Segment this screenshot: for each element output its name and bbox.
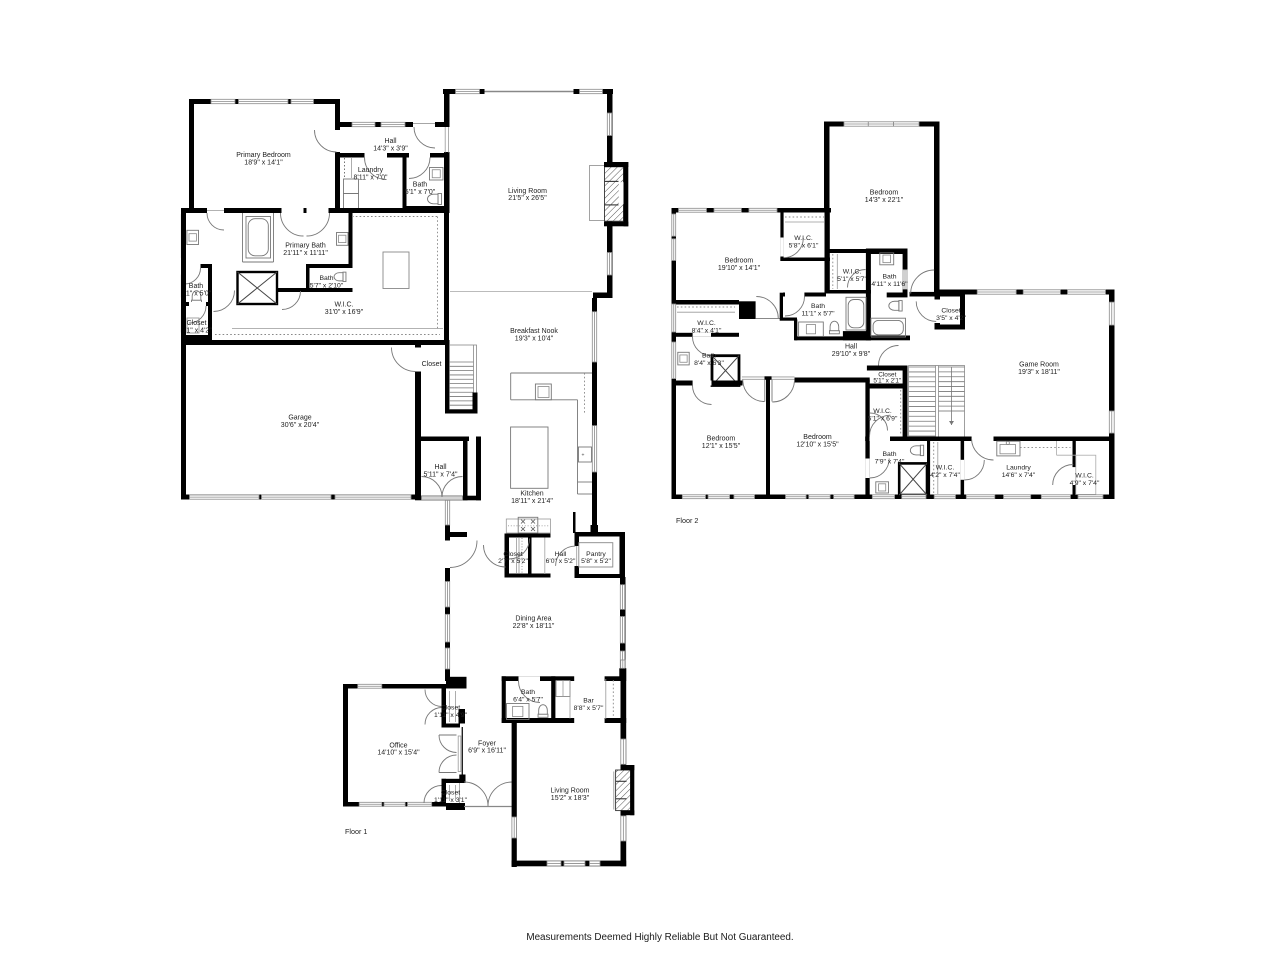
svg-text:19'3" x 18'11": 19'3" x 18'11" xyxy=(1018,369,1060,376)
svg-text:5'7" x 2'10": 5'7" x 2'10" xyxy=(310,282,344,289)
svg-text:Pantry: Pantry xyxy=(586,551,606,558)
svg-text:W.I.C.: W.I.C. xyxy=(873,408,892,415)
svg-text:4'11" x 11'6": 4'11" x 11'6" xyxy=(871,281,908,288)
svg-text:7'9" x 7'4": 7'9" x 7'4" xyxy=(875,458,905,465)
svg-text:Bedroom: Bedroom xyxy=(707,436,736,443)
svg-text:18'9" x 14'1": 18'9" x 14'1" xyxy=(244,159,283,166)
svg-text:4'9" x 7'4": 4'9" x 7'4" xyxy=(1070,480,1100,487)
svg-text:Living Room: Living Room xyxy=(508,188,547,195)
svg-text:3'5" x 4'2": 3'5" x 4'2" xyxy=(936,315,966,322)
svg-text:Bath: Bath xyxy=(702,353,716,360)
svg-text:Bedroom: Bedroom xyxy=(870,190,899,197)
svg-text:Bath: Bath xyxy=(320,275,334,282)
svg-text:Closet: Closet xyxy=(941,308,960,315)
svg-text:Bedroom: Bedroom xyxy=(803,434,832,441)
svg-text:Bath: Bath xyxy=(413,182,428,189)
svg-text:Floor 1: Floor 1 xyxy=(345,827,367,836)
svg-text:W.I.C.: W.I.C. xyxy=(334,302,353,309)
svg-text:Dining Area: Dining Area xyxy=(515,616,551,623)
svg-text:W.I.C.: W.I.C. xyxy=(1075,473,1094,480)
svg-text:Primary Bedroom: Primary Bedroom xyxy=(236,152,291,159)
svg-text:6'0" x 5'2": 6'0" x 5'2" xyxy=(546,558,576,565)
svg-text:W.I.C.: W.I.C. xyxy=(794,235,813,242)
svg-text:6'4" x 5'7": 6'4" x 5'7" xyxy=(513,696,543,703)
svg-text:12'1" x 15'5": 12'1" x 15'5" xyxy=(702,443,741,450)
svg-text:14'6" x 7'4": 14'6" x 7'4" xyxy=(1002,472,1036,479)
svg-text:Bedroom: Bedroom xyxy=(725,258,754,265)
svg-text:Bath: Bath xyxy=(883,451,897,458)
svg-text:Bath: Bath xyxy=(521,689,535,696)
svg-text:W.I.C.: W.I.C. xyxy=(843,269,862,276)
svg-text:Office: Office xyxy=(389,742,407,749)
svg-text:21'11" x 11'11": 21'11" x 11'11" xyxy=(283,250,328,257)
svg-text:5'8" x 5'2": 5'8" x 5'2" xyxy=(581,558,611,565)
svg-text:12'10" x 15'5": 12'10" x 15'5" xyxy=(796,441,839,448)
svg-text:Bar: Bar xyxy=(583,698,594,705)
svg-text:5'11" x 7'4": 5'11" x 7'4" xyxy=(424,471,458,478)
svg-text:Foyer: Foyer xyxy=(478,740,497,747)
svg-text:Hall: Hall xyxy=(384,138,397,145)
svg-text:Measurements Deemed Highly Rel: Measurements Deemed Highly Reliable But … xyxy=(526,932,793,943)
svg-text:19'10" x 14'1": 19'10" x 14'1" xyxy=(718,265,761,272)
svg-text:Laundry: Laundry xyxy=(358,167,384,174)
svg-text:8'4" x 4'1": 8'4" x 4'1" xyxy=(692,327,722,334)
svg-text:8'4" x 6'3": 8'4" x 6'3" xyxy=(694,360,724,367)
svg-text:4'2" x 7'4": 4'2" x 7'4" xyxy=(930,472,960,479)
svg-text:Closet: Closet xyxy=(441,790,460,797)
svg-text:6'9" x 16'11": 6'9" x 16'11" xyxy=(468,748,506,755)
svg-text:W.I.C.: W.I.C. xyxy=(936,465,955,472)
svg-text:21'5" x 26'5": 21'5" x 26'5" xyxy=(508,195,547,202)
svg-text:2'7" x 5'2": 2'7" x 5'2" xyxy=(498,558,528,565)
svg-text:5'8" x 6'1": 5'8" x 6'1" xyxy=(789,242,819,249)
svg-text:Bath: Bath xyxy=(811,303,825,310)
svg-text:18'11" x 21'4": 18'11" x 21'4" xyxy=(511,498,553,505)
svg-text:Closet: Closet xyxy=(441,705,460,712)
svg-text:5'1" x 2'1": 5'1" x 2'1" xyxy=(873,378,901,385)
svg-text:Hall: Hall xyxy=(434,464,447,471)
svg-text:8'11" x 7'0": 8'11" x 7'0" xyxy=(354,174,388,181)
svg-text:14'3" x 22'1": 14'3" x 22'1" xyxy=(865,197,904,204)
svg-text:W.I.C.: W.I.C. xyxy=(697,320,716,327)
svg-text:Hall: Hall xyxy=(555,551,567,558)
svg-text:29'10" x 9'8": 29'10" x 9'8" xyxy=(832,351,871,358)
svg-text:Primary Bath: Primary Bath xyxy=(285,243,326,250)
svg-text:22'8" x 18'11": 22'8" x 18'11" xyxy=(513,623,555,630)
svg-text:30'6" x 20'4": 30'6" x 20'4" xyxy=(281,422,320,429)
svg-text:5'1" x 5'7": 5'1" x 5'7" xyxy=(837,276,867,283)
svg-text:+: + xyxy=(582,453,585,459)
svg-text:Living Room: Living Room xyxy=(551,788,590,795)
svg-text:Laundry: Laundry xyxy=(1006,465,1031,472)
svg-text:Kitchen: Kitchen xyxy=(520,491,543,498)
svg-text:8'8" x 5'7": 8'8" x 5'7" xyxy=(574,705,604,712)
svg-text:Garage: Garage xyxy=(288,415,311,422)
svg-text:14'10" x 15'4": 14'10" x 15'4" xyxy=(377,750,420,757)
svg-text:Closet: Closet xyxy=(422,361,442,368)
svg-text:1'11" x 3'1": 1'11" x 3'1" xyxy=(434,797,468,804)
svg-text:Floor 2: Floor 2 xyxy=(676,516,698,525)
svg-text:Bath: Bath xyxy=(189,283,204,290)
svg-text:Game Room: Game Room xyxy=(1019,362,1059,369)
svg-text:11'1" x 5'7": 11'1" x 5'7" xyxy=(802,310,836,317)
svg-text:14'3" x 3'9": 14'3" x 3'9" xyxy=(373,145,408,152)
svg-text:15'2" x 18'3": 15'2" x 18'3" xyxy=(551,795,590,802)
svg-text:1'11" x 4'9": 1'11" x 4'9" xyxy=(434,712,468,719)
svg-text:Hall: Hall xyxy=(845,344,858,351)
svg-text:Closet: Closet xyxy=(503,551,522,558)
svg-text:19'3" x 10'4": 19'3" x 10'4" xyxy=(515,335,554,342)
svg-text:Closet: Closet xyxy=(187,320,207,327)
svg-text:31'0" x 16'9": 31'0" x 16'9" xyxy=(325,309,364,316)
svg-text:Breakfast Nook: Breakfast Nook xyxy=(510,328,558,335)
svg-text:5'1" x 7'0": 5'1" x 7'0" xyxy=(405,189,436,196)
svg-text:Bath: Bath xyxy=(883,274,897,281)
